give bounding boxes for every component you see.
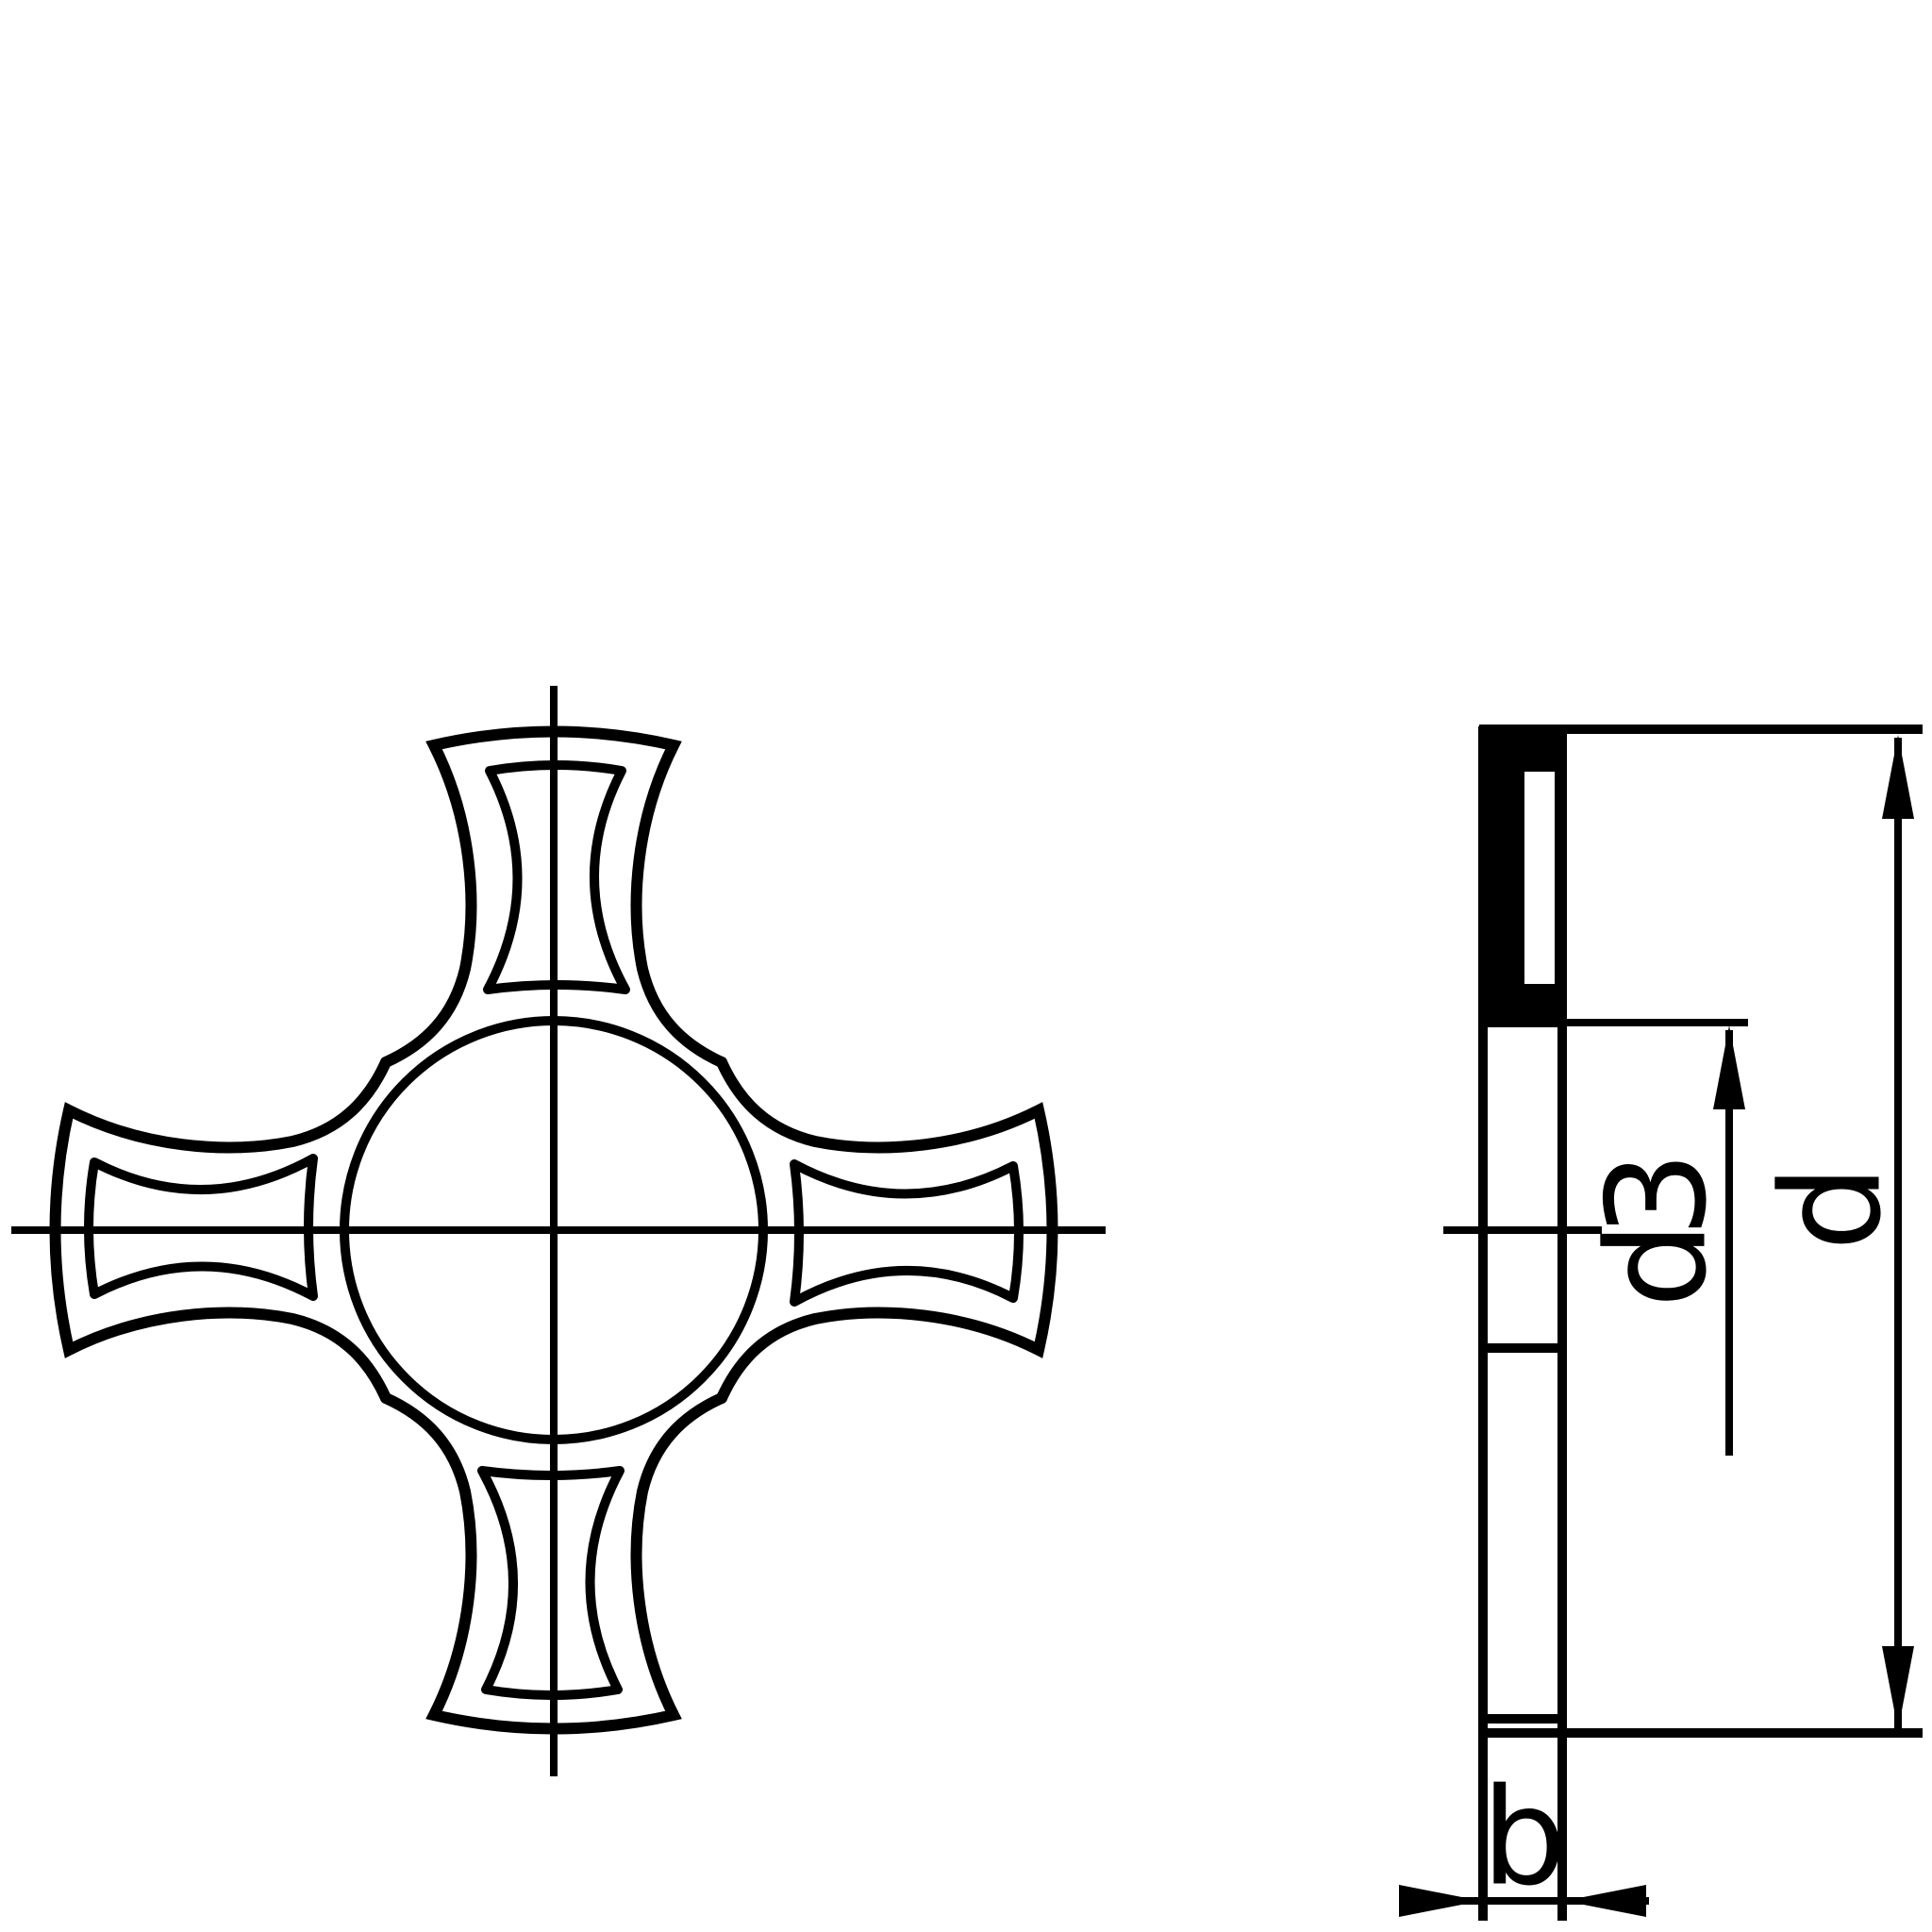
b-label: b — [1481, 1760, 1559, 1916]
d3-label: d3 — [1578, 1161, 1738, 1308]
dimension-d3: d3 — [1578, 1025, 1746, 1456]
b-arrowhead-left-icon — [1564, 1885, 1646, 1917]
d3-arrowhead-up-icon — [1713, 1025, 1745, 1109]
section-recess-slot — [1524, 772, 1555, 984]
d-label: d — [1753, 1176, 1912, 1251]
side-section-view: d3 d b — [1399, 724, 1923, 1921]
dimension-d: d — [1753, 735, 1915, 1730]
b-arrowhead-right-icon — [1399, 1885, 1481, 1917]
front-view — [11, 686, 1106, 1776]
drawing-page: d3 d b — [0, 0, 1932, 1932]
dimension-b: b — [1399, 1760, 1649, 1918]
d-arrowhead-down-icon — [1882, 1646, 1914, 1730]
d-arrowhead-up-icon — [1882, 735, 1914, 819]
technical-drawing-canvas: d3 d b — [0, 0, 1932, 1932]
